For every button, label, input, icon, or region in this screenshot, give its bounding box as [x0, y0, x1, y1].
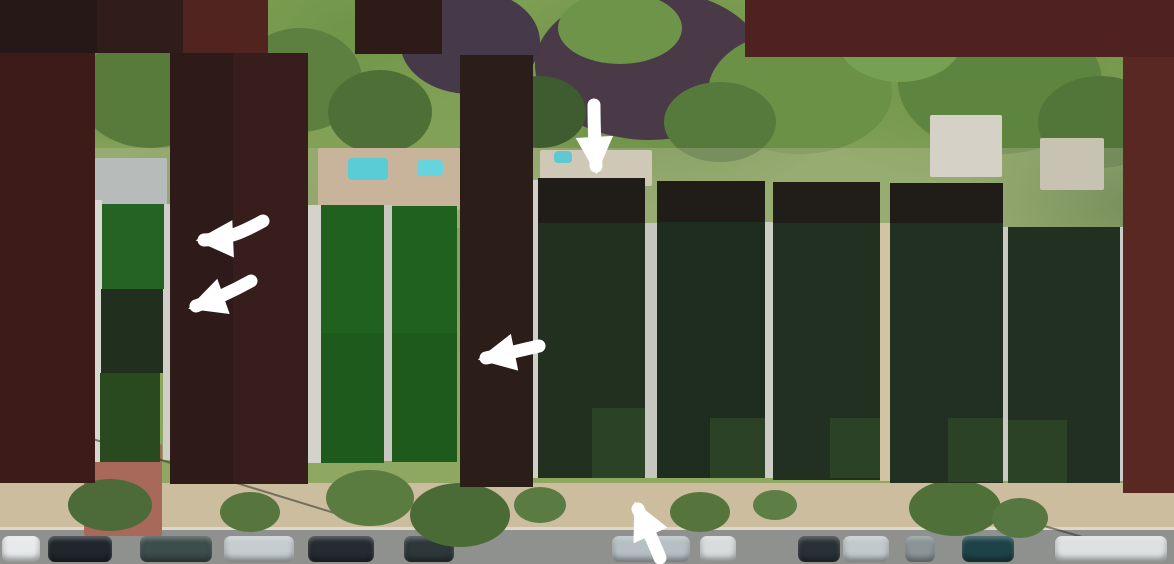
street-tree-1 [68, 479, 152, 531]
annotated-aerial-map [0, 0, 1174, 564]
overlay-block-top-left-maroon [97, 0, 183, 53]
parked-car-2 [48, 536, 112, 562]
overlay-green-mid-green-2-upper [392, 206, 457, 333]
overlay-green-mid-green-2-lower [392, 333, 457, 462]
overlay-light-patch-3 [830, 418, 880, 478]
overlay-cap-4 [890, 183, 1003, 223]
parked-car-8 [700, 536, 736, 562]
roof-far-right-roof [1040, 138, 1104, 190]
overlay-light-patch-2 [710, 418, 765, 478]
parked-car-12 [962, 536, 1014, 562]
roof-right-house-roof [930, 115, 1002, 177]
gap-strip-7 [765, 222, 773, 478]
pool-pool-large [348, 158, 388, 180]
overlay-cap-3 [773, 182, 880, 223]
gap-strip-3 [308, 205, 321, 463]
overlay-green-mid-green-1-lower [321, 333, 384, 463]
overlay-green-left-stack-bottom [100, 373, 160, 462]
parked-car-5 [308, 536, 374, 562]
parked-car-3 [140, 536, 212, 562]
overlay-cap-1 [538, 178, 645, 223]
gap-strip-2 [163, 204, 170, 460]
overlay-block-top-left-near-black [0, 0, 97, 53]
parked-car-7 [612, 536, 690, 562]
pool-pool-right [554, 151, 572, 163]
overlay-block-top-left-red-maroon [183, 0, 268, 54]
overlay-block-center-column [460, 55, 533, 487]
street-tree-3 [326, 470, 414, 526]
overlay-light-patch-1 [592, 408, 645, 478]
parked-car-9 [798, 536, 840, 562]
overlay-block-top-right-block [745, 0, 1174, 57]
roof-patio-deck [318, 148, 460, 210]
parked-car-10 [843, 536, 889, 562]
overlay-block-center-left-column-b [233, 53, 308, 484]
overlay-light-patch-4 [948, 418, 1003, 482]
gap-strip-4 [384, 205, 392, 461]
parked-car-11 [905, 536, 935, 562]
street-tree-4 [410, 483, 510, 547]
street-tree-5 [514, 487, 566, 523]
roof-gray-gable-roof [95, 158, 167, 206]
overlay-block-left-tall-block [0, 53, 95, 483]
overlay-green-mid-green-1-upper [321, 205, 384, 333]
overlay-block-top-middle-block [355, 0, 442, 54]
gap-strip-6 [645, 223, 657, 478]
canopy-blob-9 [328, 70, 432, 154]
overlay-green-left-stack-middle [101, 289, 163, 373]
pool-pool-small [417, 160, 443, 176]
overlay-cap-2 [657, 181, 765, 222]
gap-strip-8 [880, 223, 890, 481]
overlay-light-patch-5 [1008, 420, 1067, 483]
street-tree-7 [753, 490, 797, 520]
overlay-green-left-stack-top [102, 204, 164, 289]
parked-car-4 [224, 536, 294, 562]
parked-car-1 [2, 536, 40, 562]
street-tree-6 [670, 492, 730, 532]
street-tree-9 [992, 498, 1048, 538]
street-tree-2 [220, 492, 280, 532]
overlay-block-center-left-column-a [170, 53, 233, 484]
parked-car-13 [1055, 536, 1167, 562]
street-tree-8 [909, 480, 1001, 536]
overlay-block-right-edge-strip [1123, 57, 1174, 493]
